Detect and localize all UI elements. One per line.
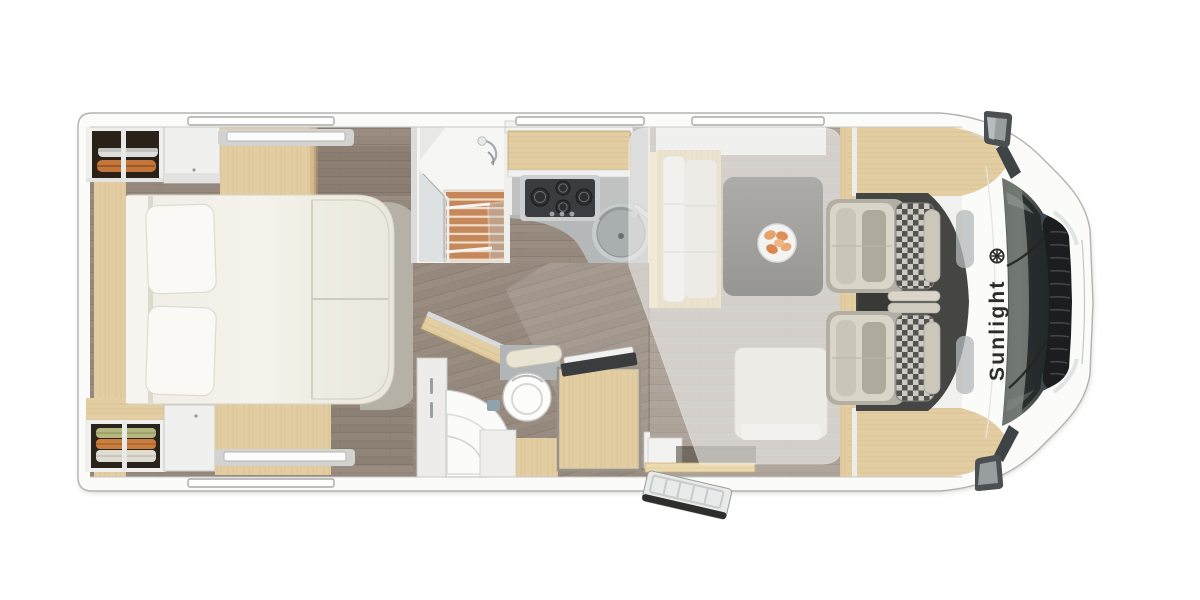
svg-text:Sunlight: Sunlight — [986, 279, 1009, 381]
